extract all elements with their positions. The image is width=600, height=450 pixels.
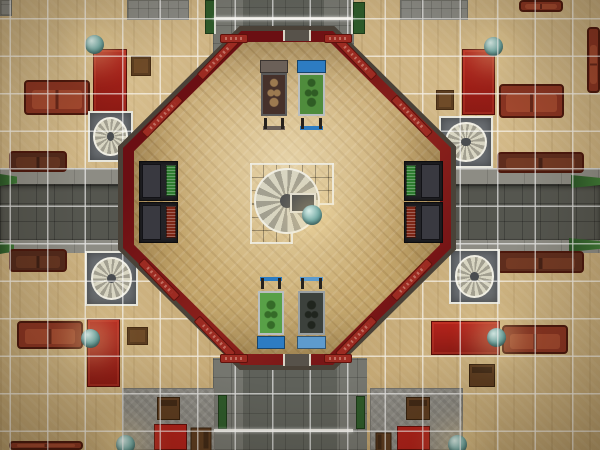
pinball-playfield	[258, 291, 283, 335]
pinball-backbox	[297, 60, 326, 73]
cabinet-screen	[406, 165, 416, 196]
arcade-cabinet-east-upper[interactable]	[404, 161, 443, 201]
interior-objects	[0, 0, 600, 450]
pinball-backbox	[257, 336, 285, 349]
cabinet-screen	[166, 206, 176, 238]
game-viewport[interactable]	[0, 0, 600, 450]
pinball-backbox	[297, 336, 326, 349]
pinball-machine-bottom-left[interactable]	[256, 277, 286, 349]
pinball-machine-bottom-right[interactable]	[296, 277, 327, 349]
cabinet-lid	[142, 164, 161, 198]
cabinet-lid	[142, 205, 161, 240]
pinball-playfield	[298, 73, 324, 116]
arcade-cabinet-east-lower[interactable]	[404, 202, 443, 243]
pinball-machine-top-right[interactable]	[296, 60, 327, 130]
cabinet-screen	[406, 206, 416, 238]
cabinet-lid	[421, 205, 440, 240]
cabinet-screen	[166, 165, 176, 196]
pinball-backbox	[260, 60, 288, 73]
arcade-cabinet-west-upper[interactable]	[139, 161, 178, 201]
pinball-machine-top-left[interactable]	[259, 60, 289, 130]
cabinet-lid	[421, 164, 440, 198]
pinball-playfield	[261, 73, 286, 116]
pinball-playfield	[298, 291, 324, 335]
arcade-cabinet-west-lower[interactable]	[139, 202, 178, 243]
plant-center-platform[interactable]	[302, 205, 322, 225]
